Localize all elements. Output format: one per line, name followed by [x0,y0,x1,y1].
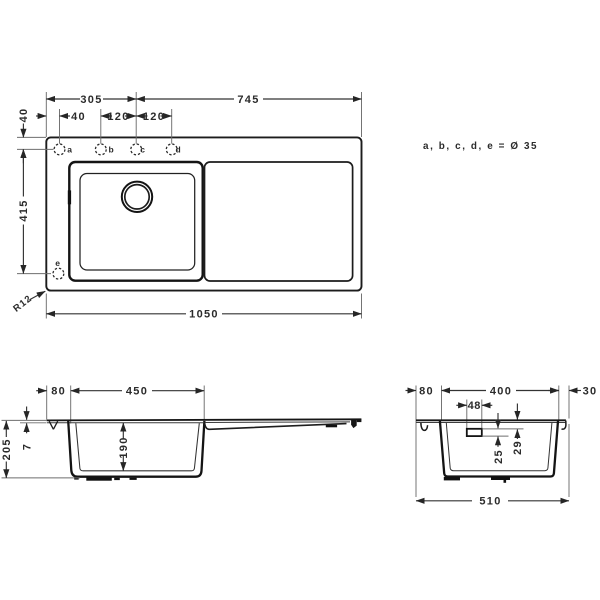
svg-text:29: 29 [512,440,524,455]
svg-text:R12: R12 [11,293,34,315]
svg-text:205: 205 [1,438,13,460]
svg-text:120: 120 [143,111,165,123]
svg-text:1050: 1050 [189,309,219,321]
svg-text:400: 400 [490,385,512,397]
svg-text:510: 510 [479,496,501,508]
svg-text:b: b [109,145,114,155]
svg-text:450: 450 [126,386,148,398]
svg-text:120: 120 [107,111,129,123]
svg-text:30: 30 [583,385,598,397]
svg-text:80: 80 [419,385,434,397]
svg-text:e: e [55,258,60,268]
svg-text:305: 305 [80,94,102,106]
svg-text:80: 80 [51,386,66,398]
svg-text:40: 40 [18,108,30,123]
svg-text:a: a [67,145,72,155]
svg-text:c: c [140,145,145,155]
svg-text:48: 48 [468,400,481,412]
svg-text:415: 415 [18,199,30,221]
svg-text:190: 190 [118,436,130,458]
svg-text:25: 25 [493,449,505,464]
svg-text:d: d [176,145,181,155]
svg-text:7: 7 [21,443,33,450]
svg-text:a, b, c, d, e = Ø 35: a, b, c, d, e = Ø 35 [423,141,538,152]
svg-text:40: 40 [71,111,86,123]
svg-text:745: 745 [237,94,259,106]
